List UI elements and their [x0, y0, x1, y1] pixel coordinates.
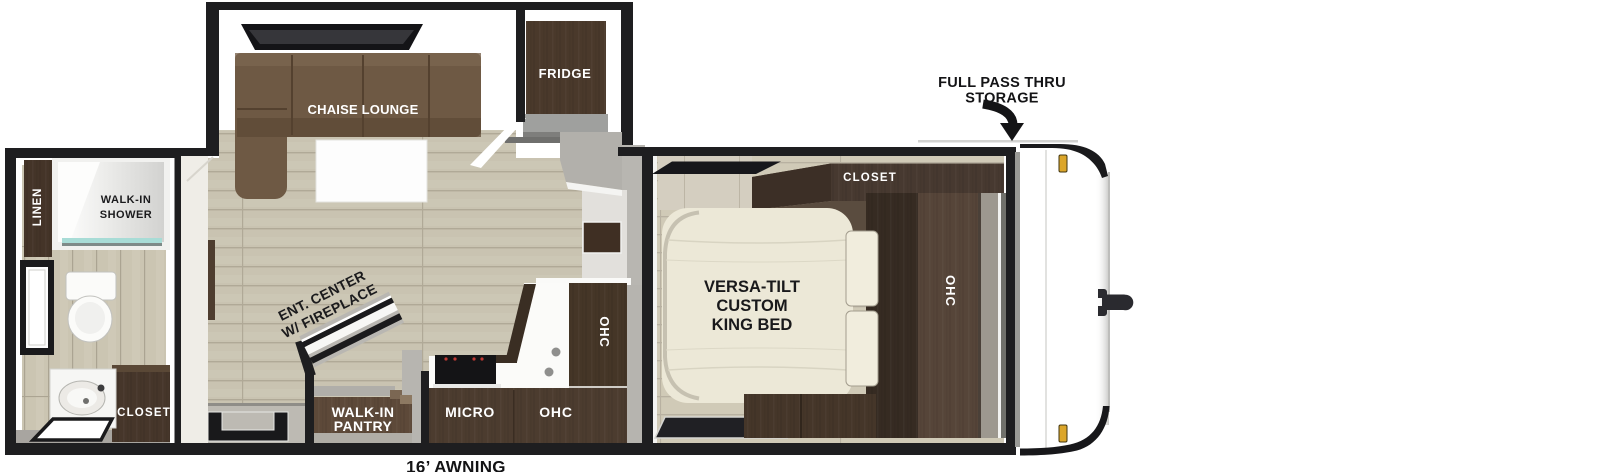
- svg-text:16’ AWNING: 16’ AWNING: [406, 458, 506, 472]
- svg-text:KING BED: KING BED: [712, 316, 793, 334]
- svg-text:MICRO: MICRO: [445, 404, 495, 420]
- svg-text:OHC: OHC: [539, 404, 573, 420]
- svg-text:FRIDGE: FRIDGE: [539, 66, 592, 81]
- svg-text:CHAISE LOUNGE: CHAISE LOUNGE: [308, 102, 419, 117]
- svg-text:CLOSET: CLOSET: [117, 407, 171, 419]
- svg-text:PANTRY: PANTRY: [334, 418, 393, 434]
- svg-text:SHOWER: SHOWER: [100, 209, 153, 221]
- svg-text:STORAGE: STORAGE: [965, 91, 1039, 107]
- svg-text:OHC: OHC: [597, 316, 612, 347]
- svg-text:VERSA-TILT: VERSA-TILT: [704, 278, 800, 296]
- svg-text:LINEN: LINEN: [32, 188, 44, 227]
- svg-text:WALK-IN: WALK-IN: [101, 194, 152, 206]
- svg-text:CUSTOM: CUSTOM: [716, 297, 787, 315]
- svg-text:FULL PASS THRU: FULL PASS THRU: [938, 75, 1066, 91]
- svg-text:OHC: OHC: [943, 275, 958, 307]
- svg-text:CLOSET: CLOSET: [843, 172, 897, 184]
